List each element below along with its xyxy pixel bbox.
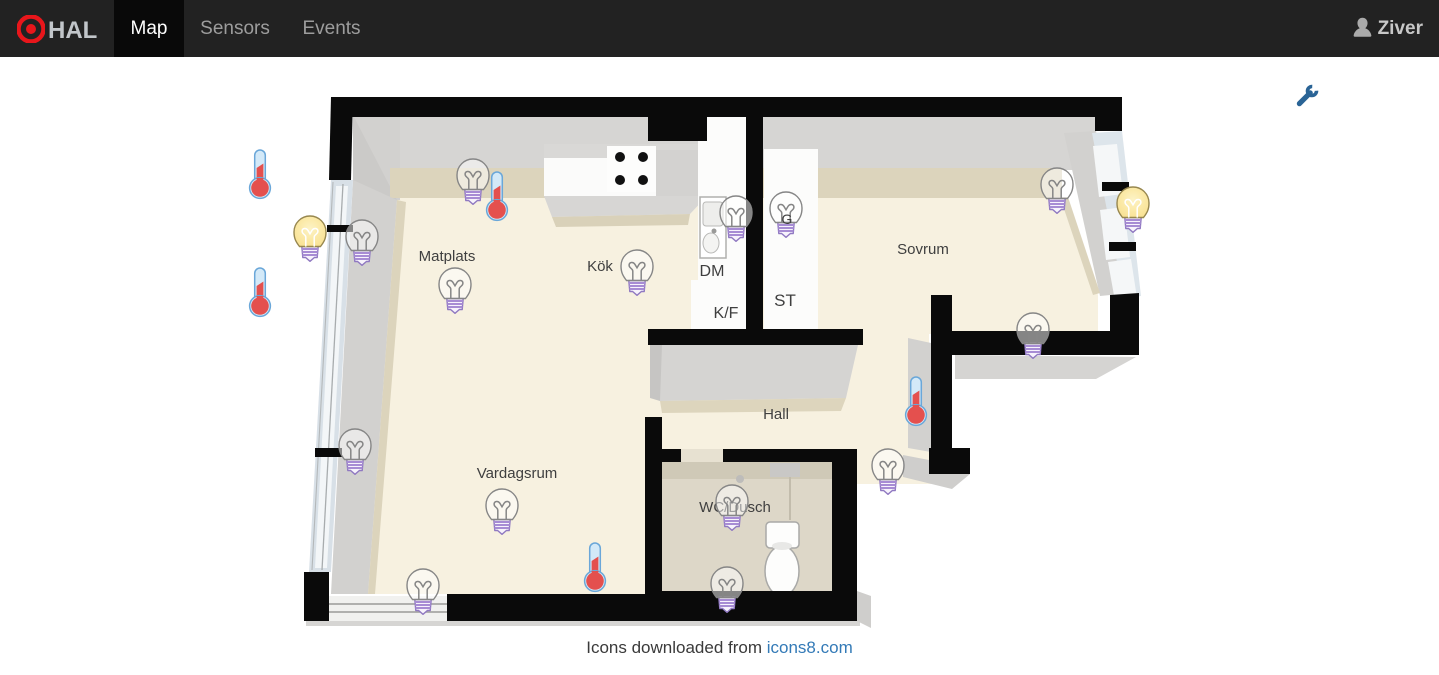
svg-text:ST: ST: [774, 291, 796, 310]
svg-text:DM: DM: [700, 263, 725, 280]
svg-text:Vardagsrum: Vardagsrum: [477, 465, 558, 482]
svg-text:G: G: [782, 211, 793, 227]
svg-text:Kök: Kök: [587, 258, 613, 275]
svg-text:Matplats: Matplats: [419, 248, 476, 265]
svg-text:Hall: Hall: [763, 406, 789, 423]
svg-text:Sovrum: Sovrum: [897, 241, 949, 258]
svg-text:K/F: K/F: [714, 305, 739, 322]
